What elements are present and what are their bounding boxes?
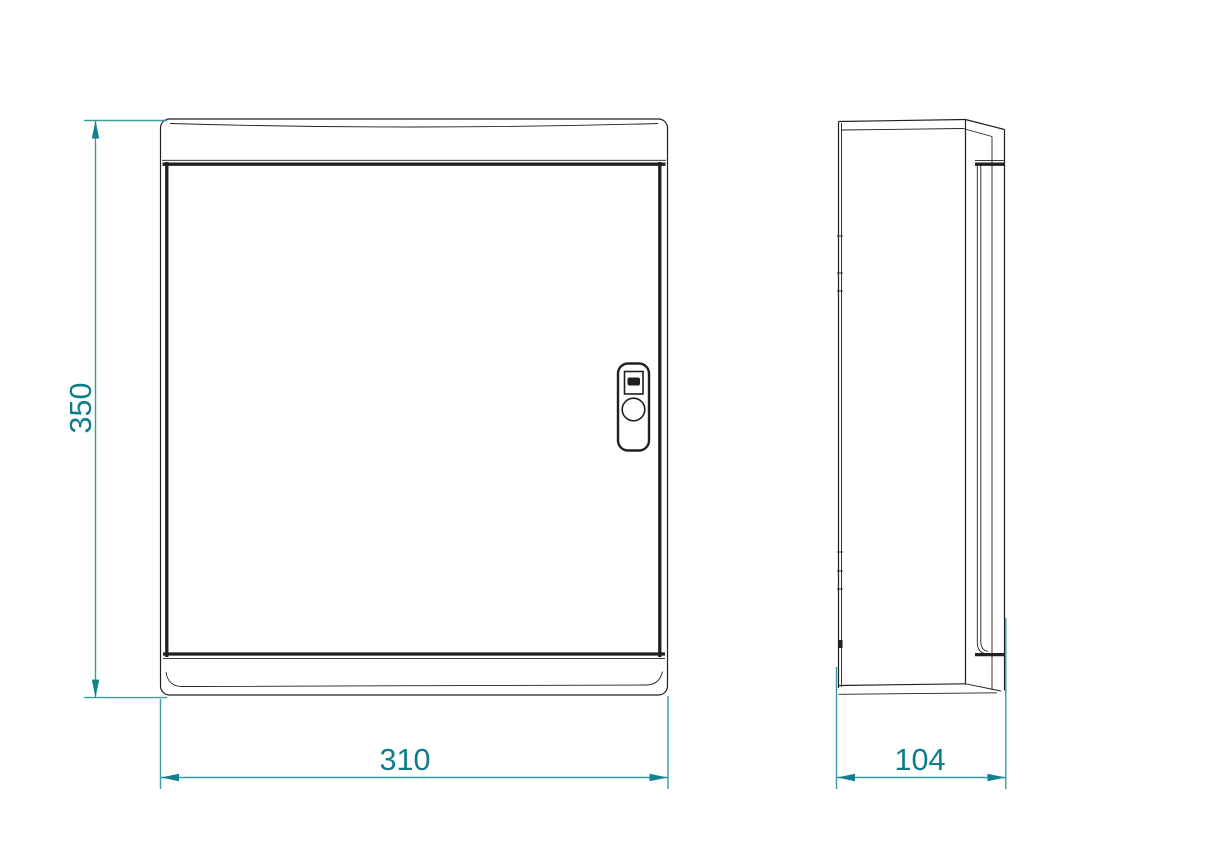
dimension-width: 310 xyxy=(161,696,669,789)
side-bottom-bevel xyxy=(966,684,1002,691)
top-cap-chamfer-line xyxy=(170,124,658,128)
side-top-bevel-outer xyxy=(966,120,1005,130)
arrow-right-icon xyxy=(988,774,1006,781)
groove-wall-outer xyxy=(977,165,987,654)
arrow-right-icon xyxy=(650,774,668,781)
dimension-depth: 104 xyxy=(837,618,1006,789)
technical-drawing: 350 310 104 xyxy=(0,0,1219,862)
side-bottom-edge xyxy=(839,684,966,686)
door-lock xyxy=(618,364,649,451)
arrow-down-icon xyxy=(92,680,99,698)
bottom-lip-line xyxy=(166,672,663,687)
drawing-canvas: 350 310 104 xyxy=(0,0,1219,862)
dimension-width-label: 310 xyxy=(380,743,431,777)
latch-mark xyxy=(839,640,843,648)
front-view xyxy=(161,119,668,695)
arrow-left-icon xyxy=(161,774,179,781)
arrow-left-icon xyxy=(837,774,855,781)
side-view xyxy=(837,120,1005,695)
groove-wall-inner xyxy=(981,165,988,651)
side-top-edge xyxy=(839,120,966,122)
dimension-depth-label: 104 xyxy=(895,743,946,777)
lock-cylinder xyxy=(622,398,645,421)
dimension-height: 350 xyxy=(64,121,167,698)
side-bottom-lip xyxy=(839,693,998,695)
side-top-bevel-inner xyxy=(963,129,992,137)
side-top-inner-line xyxy=(841,129,963,131)
arrow-up-icon xyxy=(92,121,99,139)
dimension-height-label: 350 xyxy=(64,383,98,434)
brand-emblem-icon xyxy=(628,378,641,386)
enclosure-outline xyxy=(161,119,668,695)
